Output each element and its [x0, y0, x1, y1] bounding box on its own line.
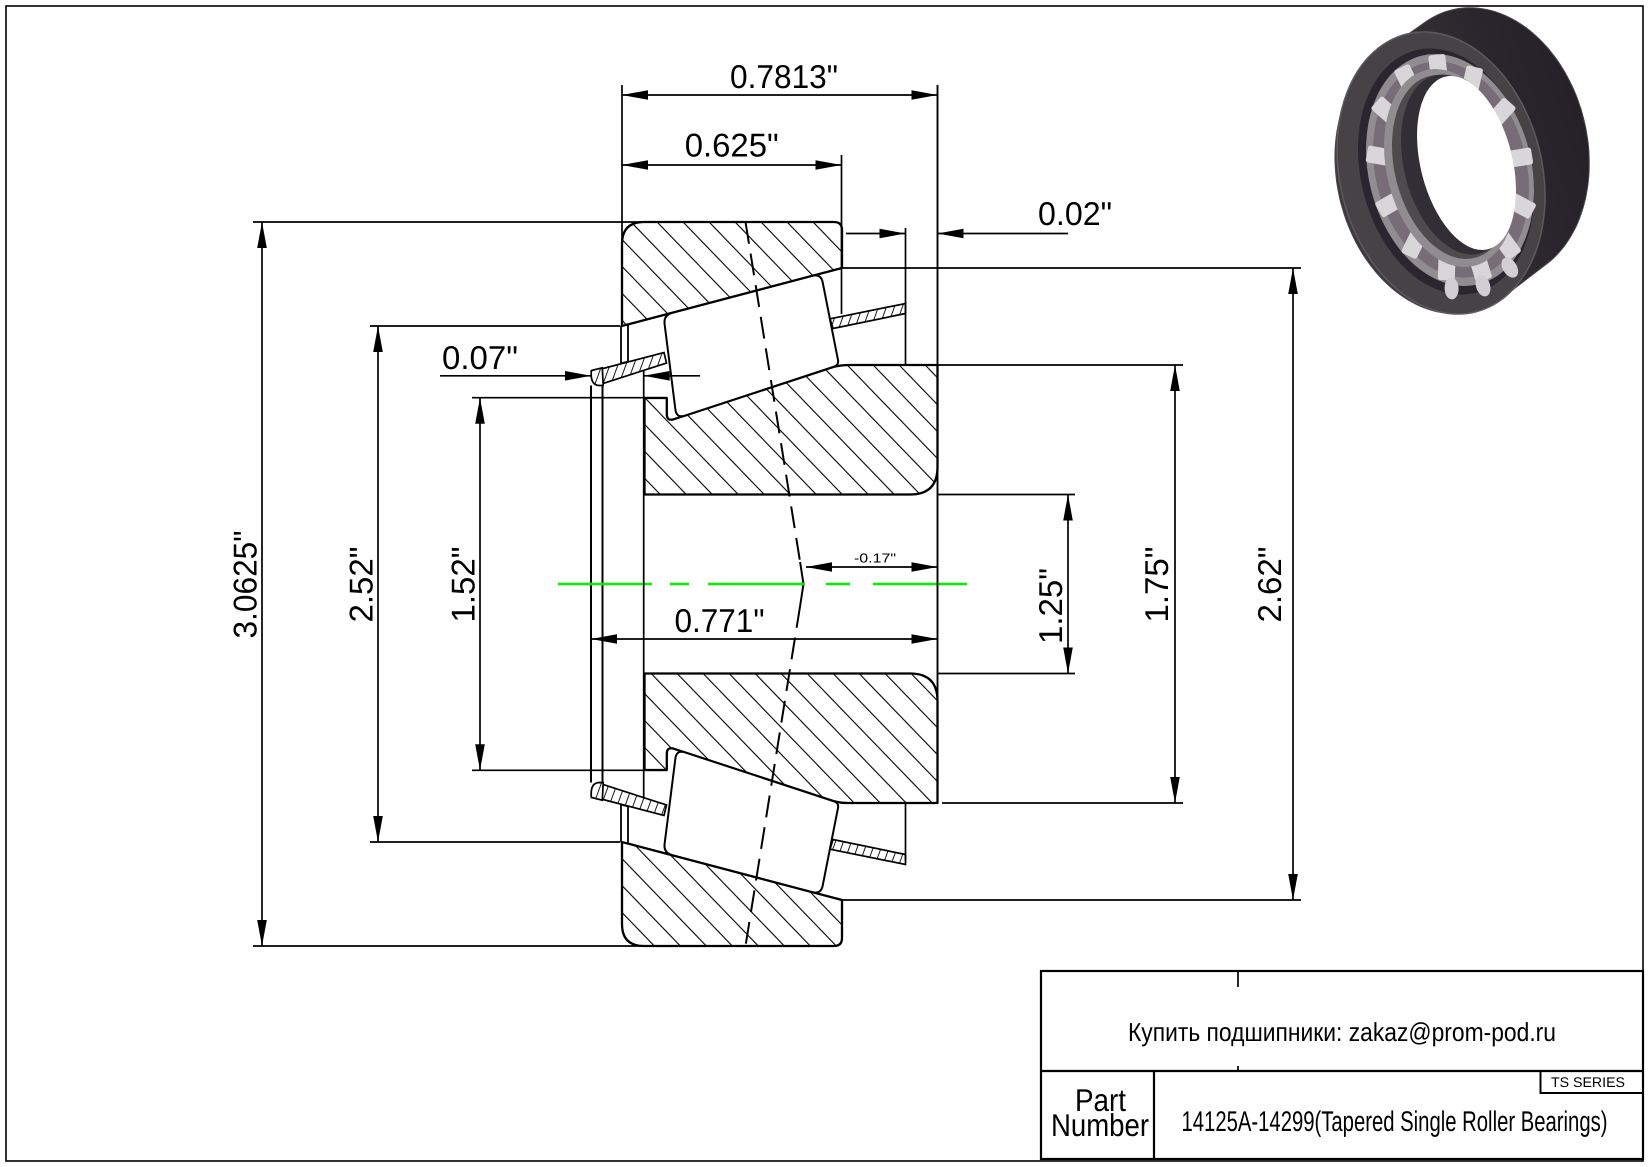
svg-text:1.25": 1.25"	[1032, 568, 1069, 644]
svg-text:1.75": 1.75"	[1138, 547, 1175, 623]
svg-text:0.771": 0.771"	[675, 602, 765, 639]
svg-text:1.52": 1.52"	[445, 547, 482, 623]
svg-text:0.7813": 0.7813"	[730, 58, 838, 95]
svg-text:14125A-14299(Tapered Single Ro: 14125A-14299(Tapered Single Roller Beari…	[1182, 1106, 1608, 1138]
svg-text:3.0625": 3.0625"	[226, 531, 263, 639]
svg-text:Number: Number	[1051, 1107, 1149, 1143]
svg-text:2.62": 2.62"	[1251, 547, 1288, 623]
svg-text:2.52": 2.52"	[343, 547, 380, 623]
svg-text:0.02": 0.02"	[1038, 195, 1112, 232]
svg-text:-0.17": -0.17"	[854, 551, 896, 566]
svg-text:TS SERIES: TS SERIES	[1551, 1074, 1625, 1090]
svg-text:0.07": 0.07"	[442, 339, 518, 376]
svg-text:0.625": 0.625"	[685, 127, 779, 164]
svg-text:Купить подшипники: zakaz@prom-: Купить подшипники: zakaz@prom-pod.ru	[1128, 1017, 1556, 1047]
